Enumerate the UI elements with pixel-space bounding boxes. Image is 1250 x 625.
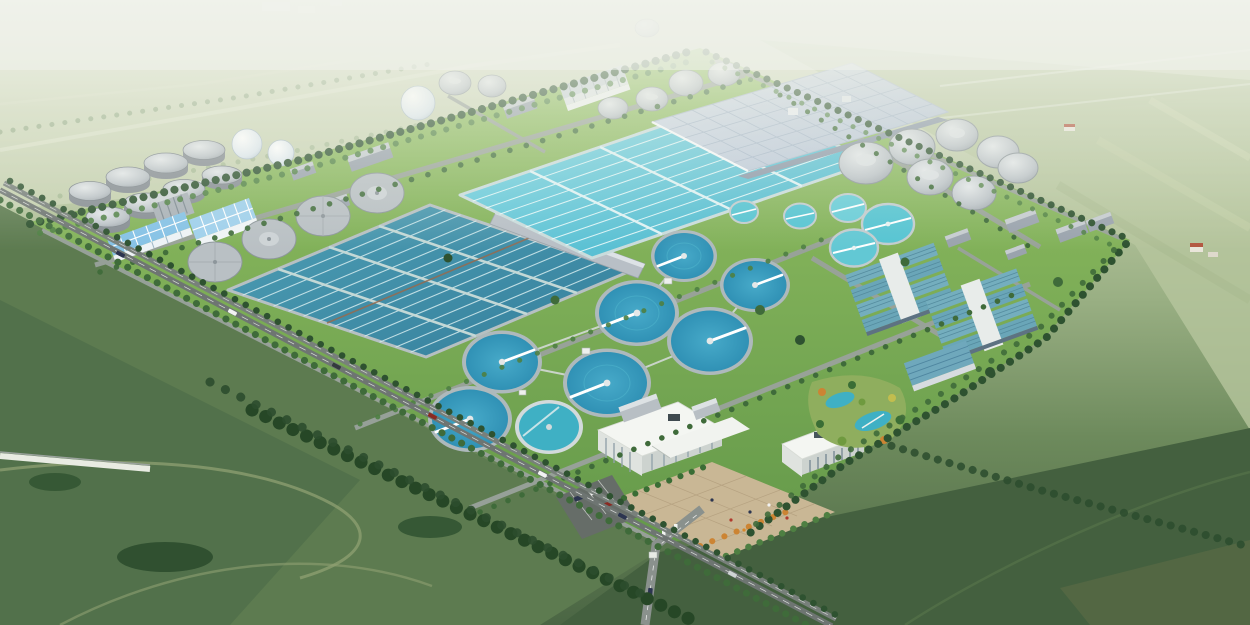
round-pond <box>515 400 583 454</box>
treatment-plant-aerial-rendering <box>0 0 1250 625</box>
horizon-haze <box>0 0 1250 70</box>
rendering-canvas: Wastewater treatment plant campus — aeri… <box>0 0 1250 625</box>
